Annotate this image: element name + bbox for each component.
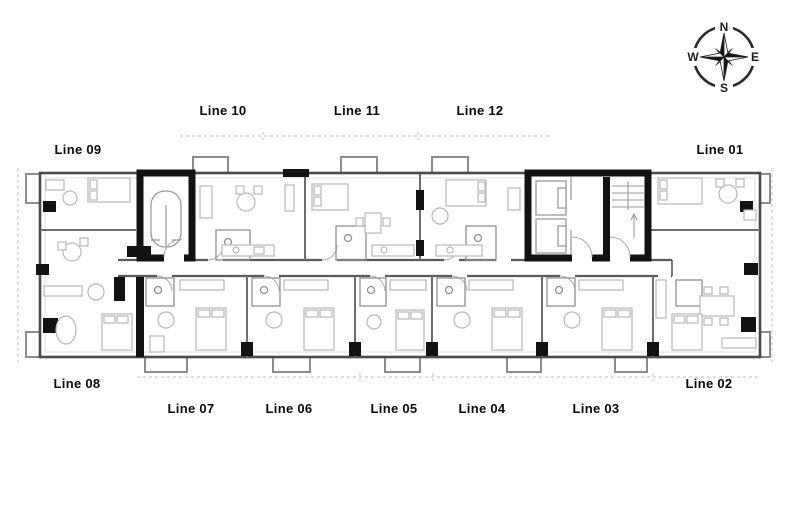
compass-south-label: S [720,81,728,95]
label-line-04: Line 04 [440,401,524,416]
label-line-06: Line 06 [247,401,331,416]
label-line-08: Line 08 [35,376,119,391]
compass-rose: N E S W [685,18,763,96]
label-line-12: Line 12 [438,103,522,118]
label-line-10: Line 10 [181,103,265,118]
label-line-07: Line 07 [149,401,233,416]
label-line-01: Line 01 [678,142,762,157]
label-line-02: Line 02 [667,376,751,391]
label-line-05: Line 05 [352,401,436,416]
label-line-03: Line 03 [554,401,638,416]
compass-east-label: E [751,50,759,64]
label-line-11: Line 11 [315,103,399,118]
compass-west-label: W [687,50,699,64]
compass-main-star [700,33,748,81]
label-line-09: Line 09 [36,142,120,157]
elevator-core [528,173,648,262]
floor-plan-drawing: N E S W [0,0,800,510]
compass-north-label: N [720,20,729,34]
floor-plan-page: N E S W Line 10 Line 11 Line 12 Line 09 … [0,0,800,510]
